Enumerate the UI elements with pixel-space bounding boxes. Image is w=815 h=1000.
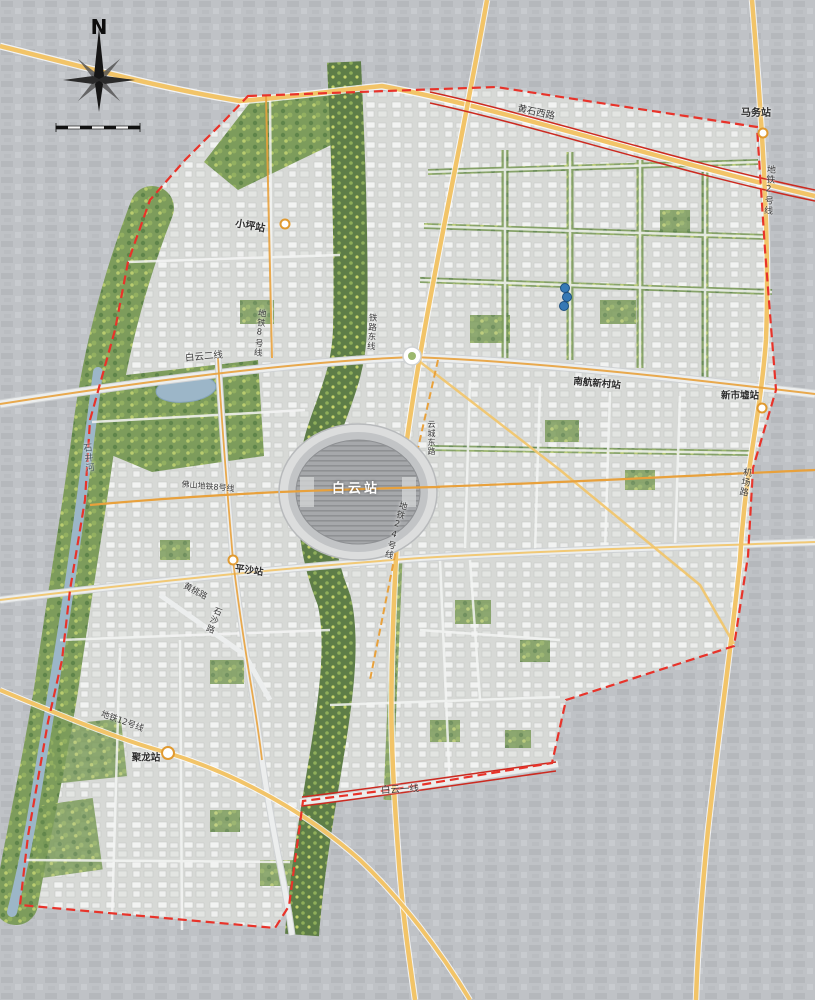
pingsha-station-marker bbox=[229, 556, 238, 565]
julong-station-marker bbox=[162, 747, 174, 759]
roundabout bbox=[403, 347, 421, 365]
xinshixu-station-marker bbox=[758, 404, 767, 413]
xiaoping-station-marker bbox=[281, 220, 290, 229]
mawu-station-marker bbox=[759, 129, 768, 138]
map-canvas bbox=[0, 0, 815, 1000]
master-plan-map: N 黄石西路 马务站 地铁2号线 小坪站 地铁8号线 铁路东线 白云二线 南航新… bbox=[0, 0, 815, 1000]
